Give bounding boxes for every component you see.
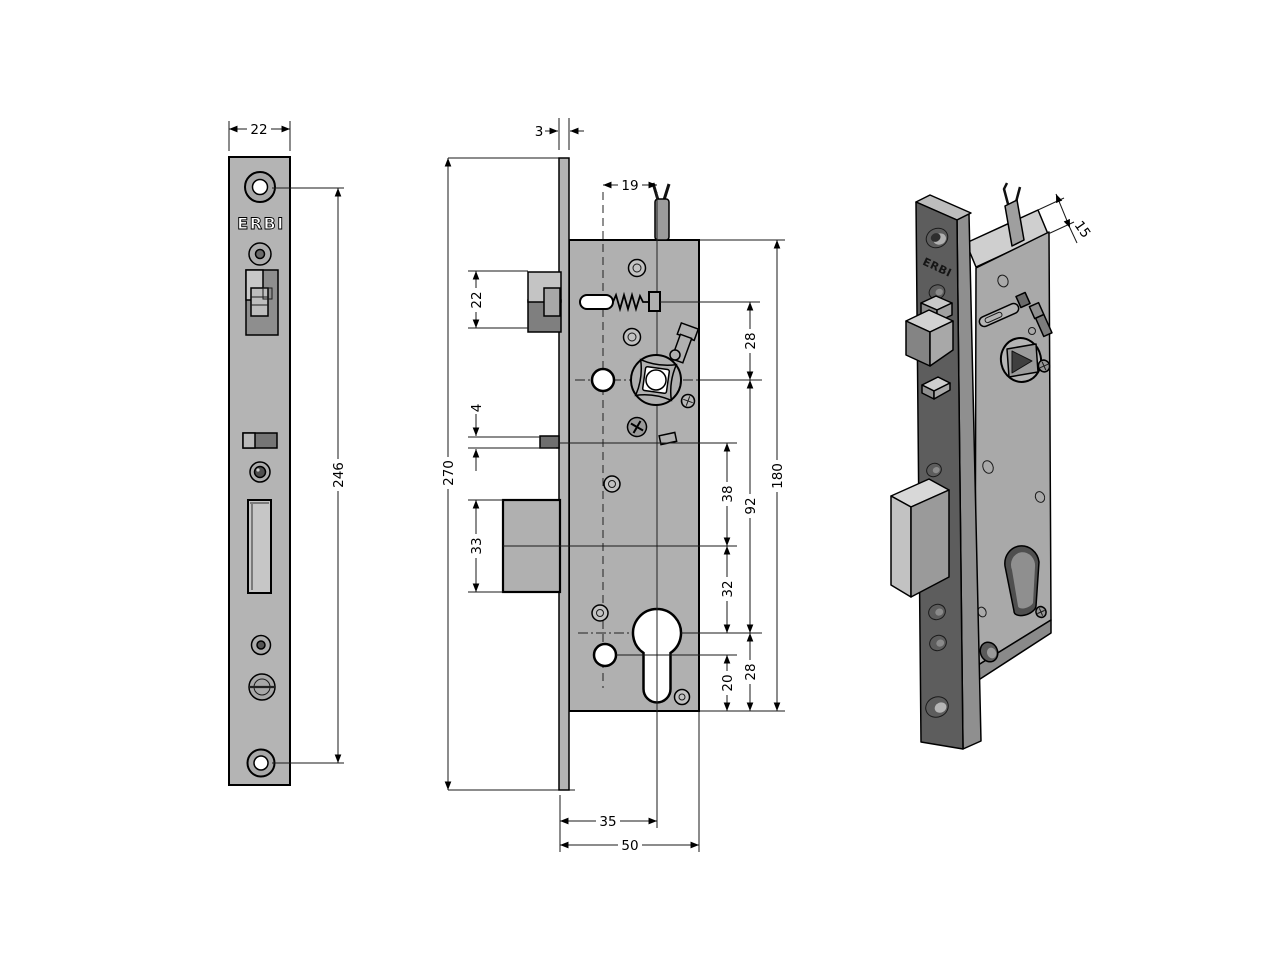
cable xyxy=(653,183,669,240)
latch-bolt-side xyxy=(528,272,561,332)
dim-spindle-offset: 19 xyxy=(603,177,657,194)
dim-180-label: 180 xyxy=(770,463,786,489)
dim-trigger-gap-label: 4 xyxy=(469,404,485,413)
faceplate-edge xyxy=(559,158,569,790)
lock-drawing-svg: 22 ERBI xyxy=(0,0,1280,960)
iso-latch-bolt xyxy=(906,296,953,366)
dim-plate-thickness-label: 3 xyxy=(535,124,544,140)
deadbolt-slot xyxy=(248,500,271,593)
iso-deadbolt xyxy=(891,479,949,597)
isometric-view: ERBI 15 xyxy=(891,183,1094,749)
trigger-pin xyxy=(540,436,559,448)
dim-bolt-height: 33 xyxy=(468,500,503,592)
fixing-hole-top xyxy=(592,369,614,391)
case-ring-1 xyxy=(629,260,646,277)
screw-hole-upper xyxy=(249,243,271,265)
lever-pin xyxy=(670,350,680,360)
dim-hole-spacing-label: 246 xyxy=(331,462,347,488)
iso-faceplate-front xyxy=(916,202,963,749)
dim-bolt-height-label: 33 xyxy=(469,537,485,554)
dim-backset-label: 35 xyxy=(599,814,616,830)
dim-28-bottom-label: 28 xyxy=(743,663,759,680)
dim-latch-height-label: 22 xyxy=(469,291,485,308)
front-view: 22 ERBI xyxy=(229,121,347,785)
dim-case-depth: 50 xyxy=(560,712,699,854)
case-ring-4 xyxy=(592,605,608,621)
brand-logo-front: ERBI xyxy=(237,214,284,233)
top-mounting-hole xyxy=(245,172,275,202)
screw-hole-lower xyxy=(252,636,271,655)
dim-spindle-offset-label: 19 xyxy=(621,178,638,194)
dim-case-depth-label: 50 xyxy=(621,838,638,854)
dim-92-label: 92 xyxy=(743,497,759,514)
case-ring-2 xyxy=(624,329,641,346)
dim-latch-height: 22 xyxy=(468,271,528,328)
dim-28-top-label: 28 xyxy=(743,332,759,349)
case-ring-5 xyxy=(675,690,690,705)
bottom-mounting-hole xyxy=(248,750,275,777)
dim-plate-width: 22 xyxy=(229,121,290,151)
dim-20-label: 20 xyxy=(720,674,736,691)
dim-38-label: 38 xyxy=(720,485,736,502)
dim-backset: 35 xyxy=(560,711,657,852)
technical-drawing-page: 22 ERBI xyxy=(0,0,1280,960)
case-ring-3 xyxy=(604,476,620,492)
slotted-screw-lower xyxy=(249,674,275,700)
aux-bolt-slot xyxy=(243,433,277,448)
dim-plate-height-label: 270 xyxy=(441,460,457,486)
dim-32-label: 32 xyxy=(720,580,736,597)
latch-bolt-front xyxy=(246,270,278,335)
side-view: 270 3 19 xyxy=(440,118,786,854)
screw-middle xyxy=(250,462,270,482)
dim-plate-width-label: 22 xyxy=(250,122,267,138)
dim-plate-height: 270 xyxy=(440,158,575,790)
dim-plate-thickness: 3 xyxy=(535,118,584,150)
